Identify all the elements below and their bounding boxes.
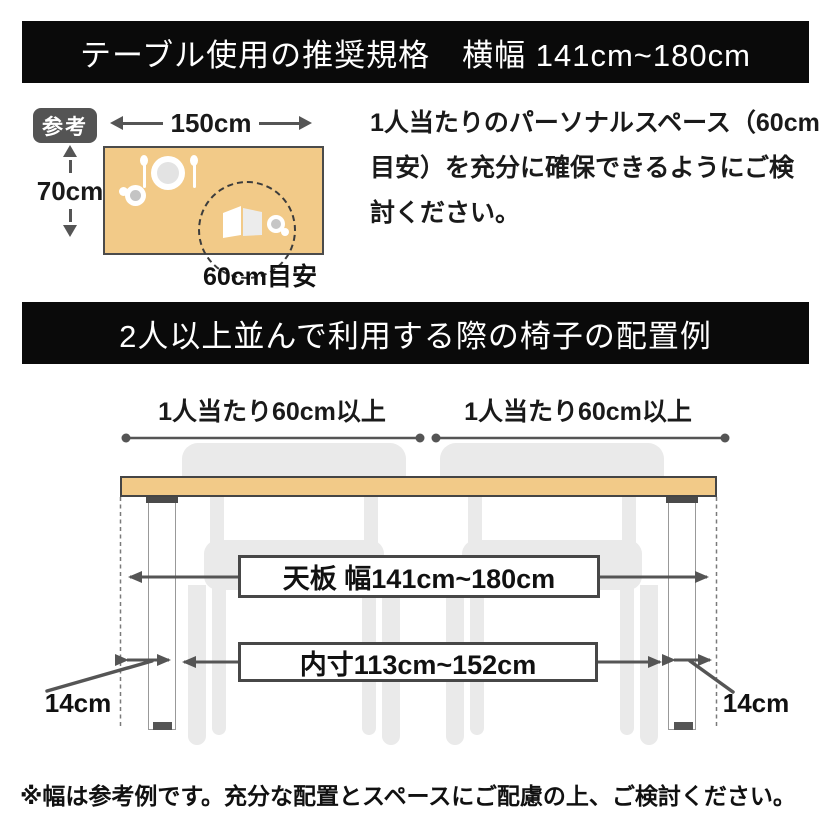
- bottom-title: 2人以上並んで利用する際の椅子の配置例: [119, 311, 712, 356]
- arrow-down-icon: [63, 225, 77, 237]
- personal-space-note: 1人当たりのパーソナルスペース（60cm 目安）を充分に確保できるようにご検 討…: [370, 101, 820, 236]
- tabletop-width-box: 天板 幅141cm~180cm: [238, 555, 600, 598]
- arrow-right-icon: [299, 116, 312, 130]
- note-line-3: 討ください。: [370, 191, 820, 236]
- leg-offset-label-left: 14cm: [28, 688, 128, 719]
- inner-width-box: 内寸113cm~152cm: [238, 642, 598, 682]
- bottom-title-banner: 2人以上並んで利用する際の椅子の配置例: [22, 302, 809, 364]
- tabletop-width-label: 天板 幅141cm~180cm: [283, 557, 555, 596]
- table-depth-label: 70cm: [37, 176, 104, 206]
- reference-badge: 参考: [33, 108, 97, 143]
- per-person-label-right: 1人当たり60cm以上: [428, 392, 728, 428]
- table-width-label: 150cm: [163, 108, 260, 139]
- inner-width-label: 内寸113cm~152cm: [300, 643, 536, 682]
- note-line-1: 1人当たりのパーソナルスペース（60cm: [370, 101, 820, 146]
- arrow-up-icon: [63, 145, 77, 157]
- fork-icon: [140, 155, 148, 189]
- depth-dimension-70cm: 70cm: [36, 145, 104, 237]
- leg-offset-label-right: 14cm: [706, 688, 806, 719]
- width-dimension-150cm: 150cm: [110, 109, 312, 137]
- per-person-label-left: 1人当たり60cm以上: [122, 392, 422, 428]
- footer-note: ※幅は参考例です。充分な配置とスペースにご配慮の上、ご検討ください。: [20, 777, 825, 811]
- cup-icon: [125, 185, 146, 206]
- personal-space-label: 60cm目安: [195, 257, 325, 293]
- plate-icon: [151, 156, 185, 190]
- top-title-banner: テーブル使用の推奨規格 横幅 141cm~180cm: [22, 21, 809, 83]
- top-title: テーブル使用の推奨規格 横幅 141cm~180cm: [80, 30, 751, 75]
- spoon-icon: [190, 155, 198, 189]
- arrow-left-icon: [110, 116, 123, 130]
- open-book-icon: [222, 204, 264, 238]
- teacup-handle-icon: [281, 228, 289, 236]
- table-size-infographic: テーブル使用の推奨規格 横幅 141cm~180cm 参考 150cm 70cm…: [0, 0, 831, 831]
- note-line-2: 目安）を充分に確保できるようにご検: [370, 146, 820, 191]
